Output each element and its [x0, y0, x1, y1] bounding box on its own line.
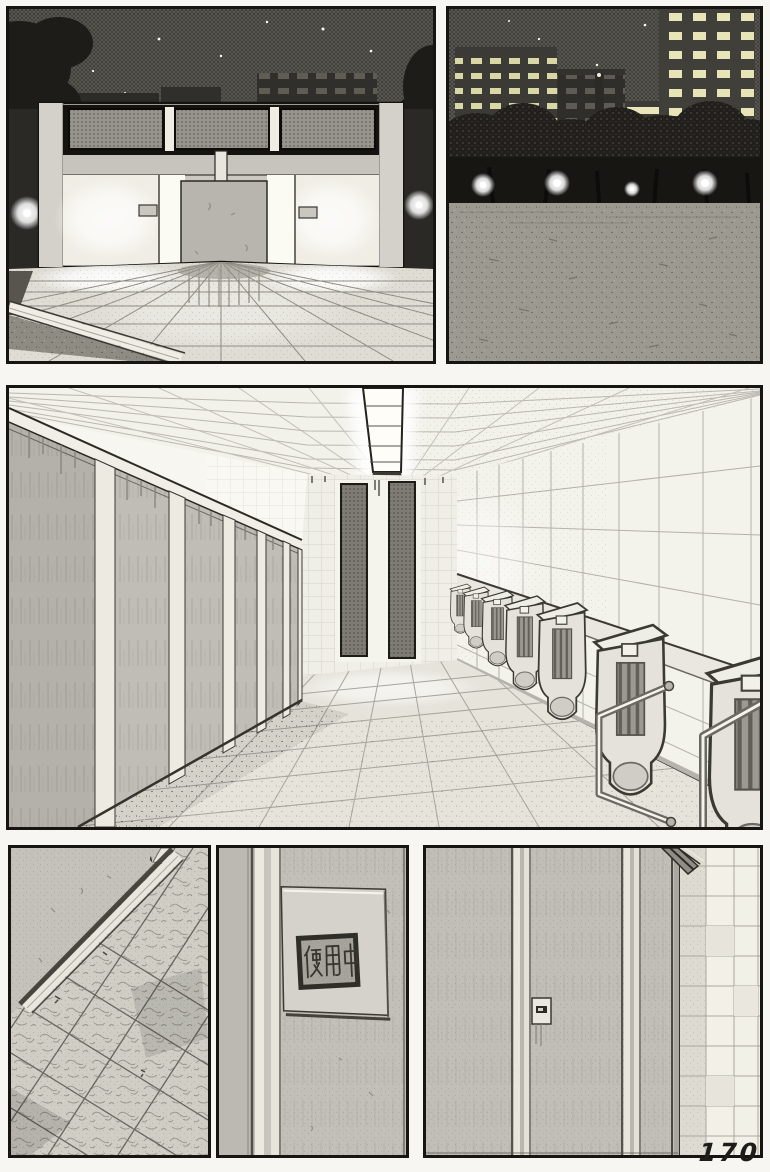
ceiling-light-fixture [347, 388, 419, 484]
occupied-sign-plate [277, 881, 392, 1024]
manga-page: 170 [0, 0, 770, 1172]
back-wall [302, 474, 457, 690]
door-frame-strips [219, 848, 280, 1155]
entrance-sign-left [139, 205, 157, 216]
entrance-right [267, 175, 381, 265]
entrance-left [54, 175, 185, 265]
panel-floor-closeup [8, 845, 211, 1158]
door-frame-strip-1 [512, 848, 530, 1155]
clerestory-band [63, 105, 379, 155]
tiled-wall [680, 848, 760, 1155]
privacy-screen [181, 181, 267, 269]
panel-door-lock-closeup [423, 845, 763, 1158]
door-frame-strip-2 [622, 848, 640, 1155]
pillar-right [379, 103, 403, 267]
page-number: 170 [687, 1138, 761, 1167]
back-wall-dark-panel-2 [389, 482, 415, 658]
field-ground [449, 203, 760, 361]
center-post [215, 151, 227, 185]
restroom-building [39, 103, 403, 269]
back-wall-dark-panel-1 [341, 484, 367, 656]
panel-exterior-restroom-night [6, 6, 436, 364]
entrance-sign-right [299, 207, 317, 218]
pillar-left [39, 103, 63, 267]
panel-park-night [446, 6, 763, 364]
panel-restroom-interior [6, 385, 763, 830]
panel-door-occupied-sign [216, 845, 409, 1158]
